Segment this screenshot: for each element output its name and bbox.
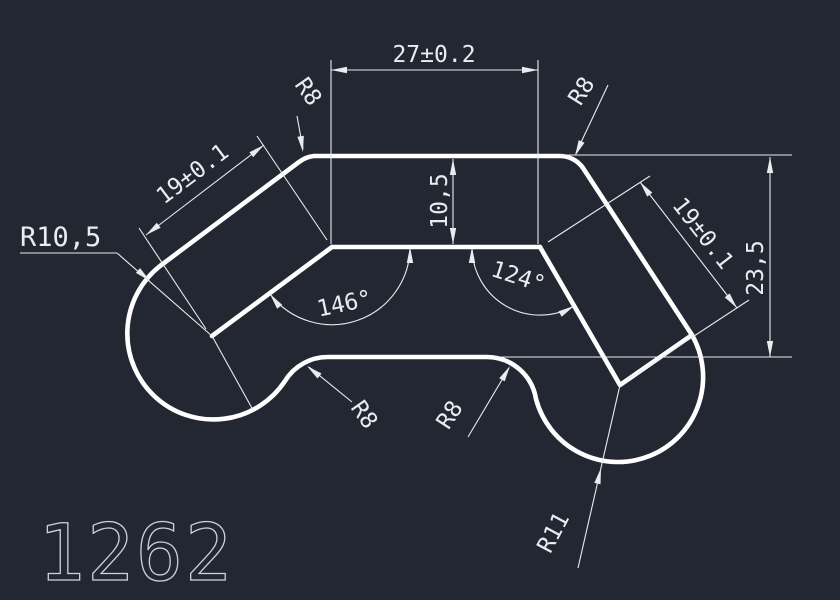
outer-profile xyxy=(127,156,703,462)
cad-canvas: 27±0.2 10,5 23,5 19±0.1 19±0.1 146° 124°… xyxy=(0,0,840,600)
arrow-r8-top-left xyxy=(297,136,303,152)
arrow-10-5-top xyxy=(450,159,456,175)
arrow-r8-top-right xyxy=(575,140,585,156)
angle-text-right: 124° xyxy=(488,256,549,298)
dim-text-band-thickness: 10,5 xyxy=(427,173,453,228)
arrow-r8-bottom-left xyxy=(307,366,322,379)
arrow-27-right xyxy=(522,67,538,73)
cad-drawing: 27±0.2 10,5 23,5 19±0.1 19±0.1 146° 124°… xyxy=(0,0,840,600)
ext-line-19R-a xyxy=(548,176,650,242)
arrow-19R-lower xyxy=(725,293,737,308)
dim-text-right-height: 23,5 xyxy=(743,240,769,295)
arrow-10-5-bottom xyxy=(450,228,456,244)
radius-text-top-left: R8 xyxy=(289,73,326,111)
arrow-124-right xyxy=(559,306,575,317)
radius-text-bottom-left: R8 xyxy=(345,396,382,434)
dim-text-top-width: 27±0.2 xyxy=(392,42,475,68)
arrow-19R-upper xyxy=(640,182,652,197)
arrow-19L-lower xyxy=(146,223,161,235)
drawing-number: 1262 xyxy=(38,509,234,599)
part-outline xyxy=(127,156,703,462)
arrow-r8-bottom-right xyxy=(499,366,510,381)
ext-line-19R-b xyxy=(627,300,749,380)
arrow-23-5-bottom xyxy=(767,341,773,357)
radius-text-top-right: R8 xyxy=(564,73,601,110)
dim-text-right-leg: 19±0.1 xyxy=(667,193,739,274)
left-end-edge xyxy=(212,336,253,410)
arrow-23-5-top xyxy=(767,157,773,173)
arrow-124-left xyxy=(469,247,475,263)
arrow-146-left xyxy=(270,294,282,309)
radius-text-left-cap: R10,5 xyxy=(20,222,101,253)
arrow-146-right xyxy=(407,247,413,263)
radius-text-right-cap: R11 xyxy=(533,508,575,557)
arrow-r11 xyxy=(594,468,601,484)
arrow-27-left xyxy=(331,67,347,73)
inner-right-diagonal-edge xyxy=(540,247,620,385)
radius-text-bottom-right: R8 xyxy=(432,396,469,433)
arrow-19L-upper xyxy=(249,145,264,157)
